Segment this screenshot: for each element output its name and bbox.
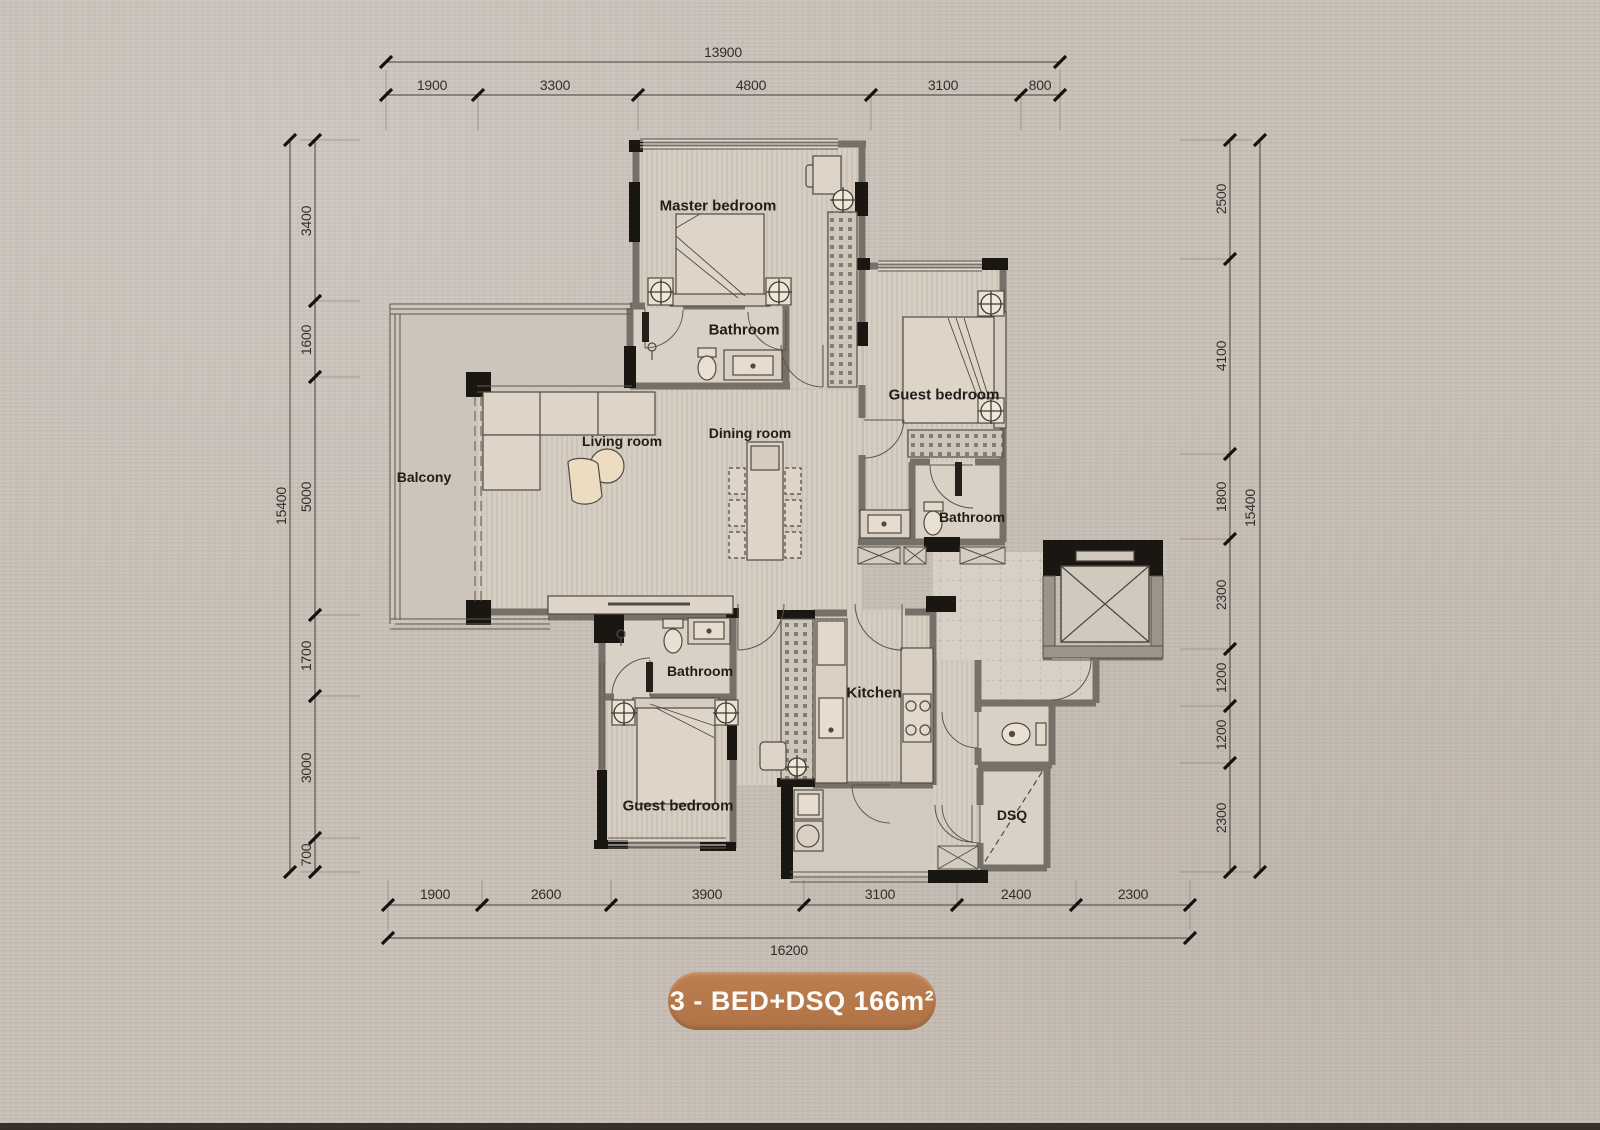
guest-wardrobe	[908, 430, 1003, 457]
elevator-door	[1076, 551, 1134, 561]
laundry	[794, 790, 823, 851]
dsq-toilet	[1002, 723, 1046, 745]
floorplan-page: Master bedroom Bathroom Guest bedroom Ba…	[0, 0, 1600, 1130]
unit-type-badge-text: 3 - BED+DSQ 166m²	[670, 986, 934, 1017]
stove	[903, 694, 931, 742]
bottom-edge-bar	[0, 1123, 1600, 1130]
tv-console	[548, 596, 733, 614]
hall-stool	[760, 742, 786, 770]
floorplan-drawing	[0, 0, 1600, 1130]
elevator	[1043, 551, 1163, 658]
unit-type-badge: 3 - BED+DSQ 166m²	[668, 972, 936, 1030]
dining-table	[747, 442, 783, 560]
dsq-floor	[980, 768, 1047, 868]
side-table	[568, 458, 602, 504]
master-wardrobe	[828, 212, 857, 387]
